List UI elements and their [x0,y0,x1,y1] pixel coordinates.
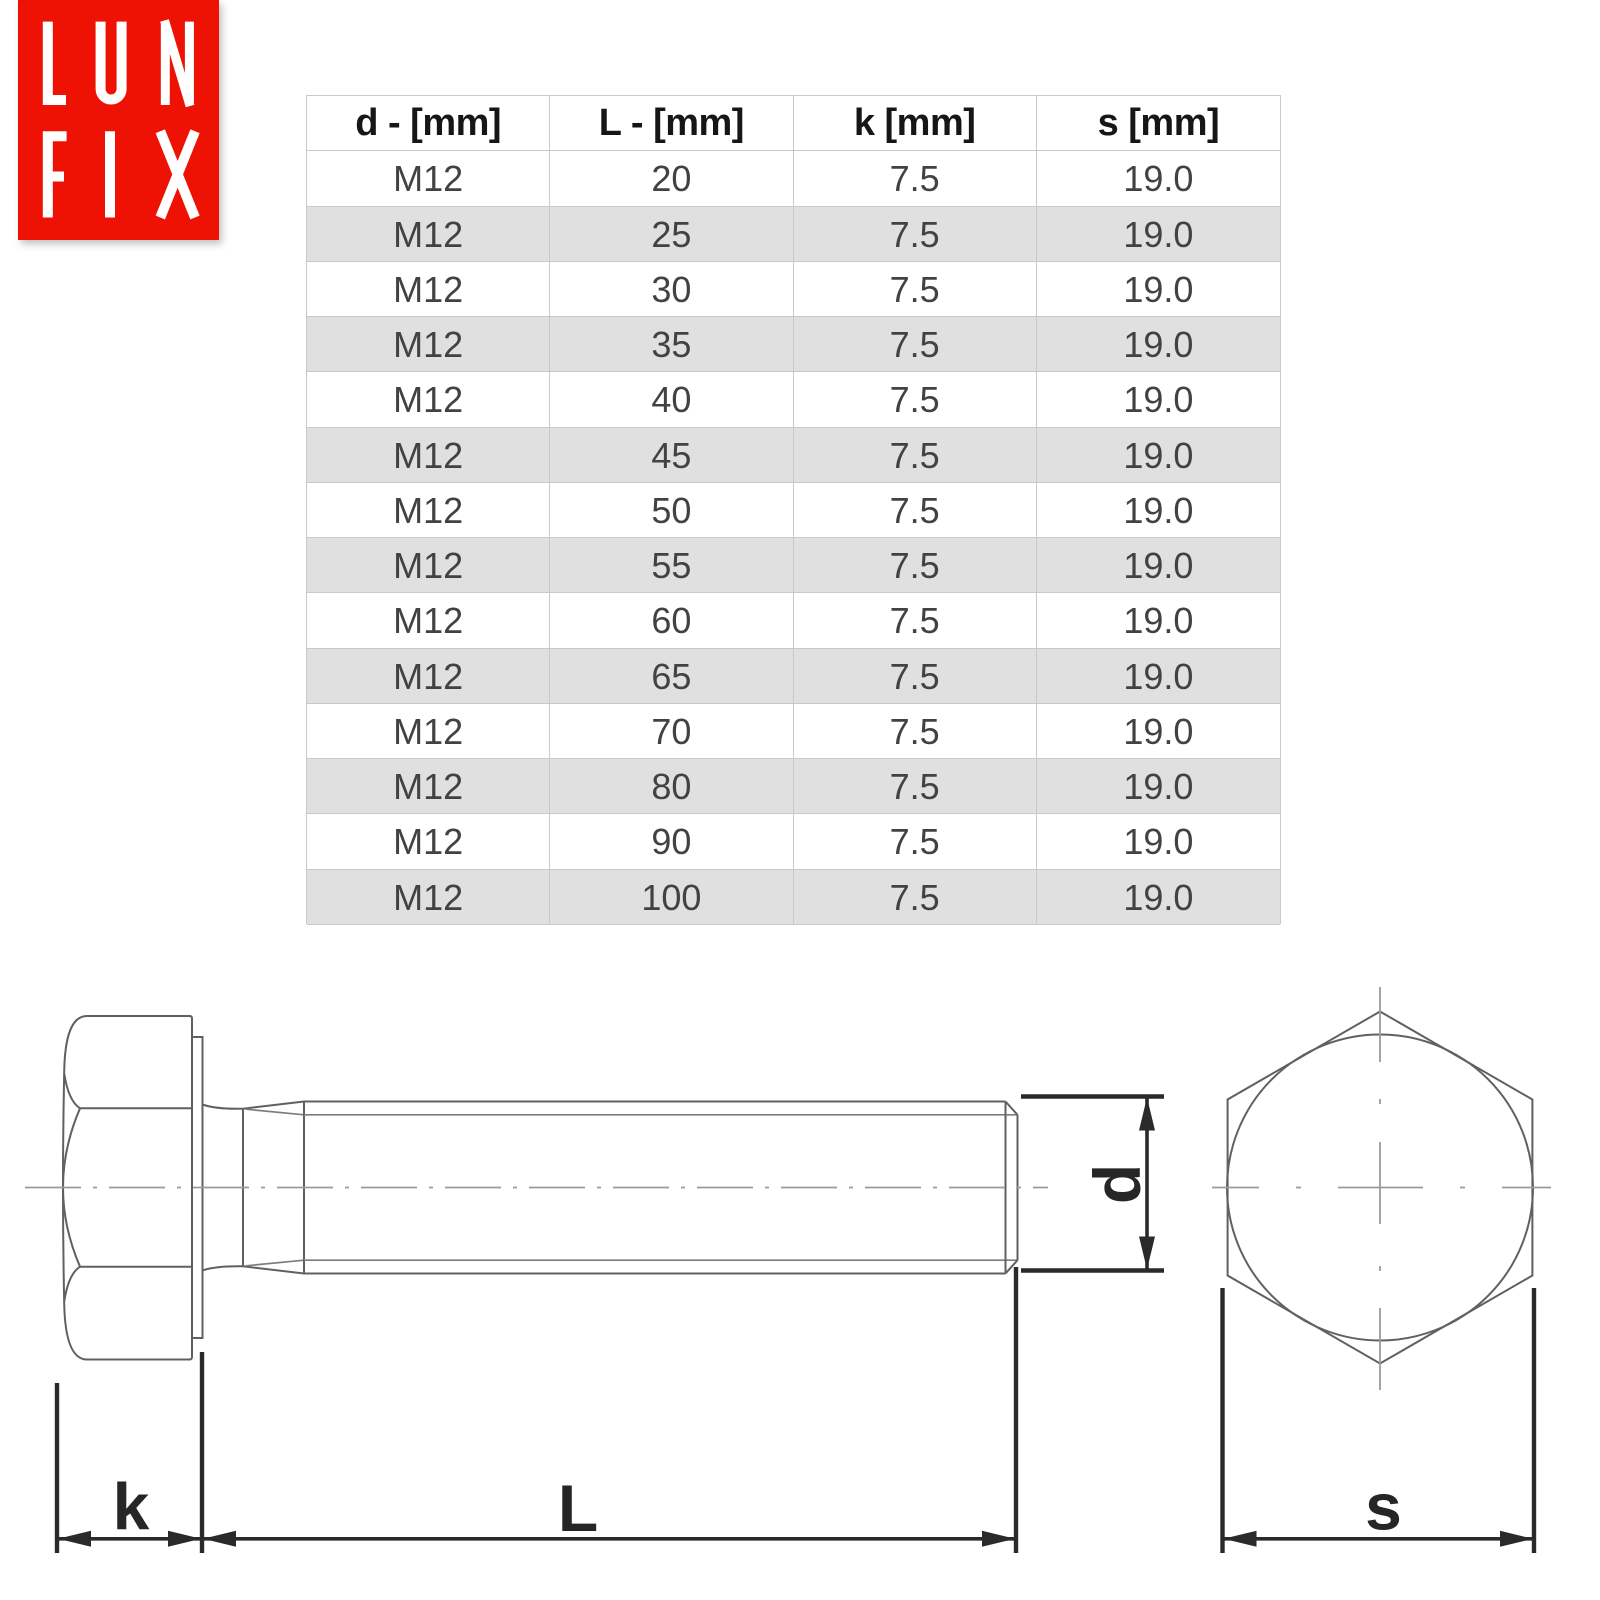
svg-text:s: s [1365,1470,1402,1544]
svg-text:L: L [558,1471,598,1545]
svg-text:k: k [113,1470,150,1544]
svg-text:d: d [1080,1164,1154,1204]
